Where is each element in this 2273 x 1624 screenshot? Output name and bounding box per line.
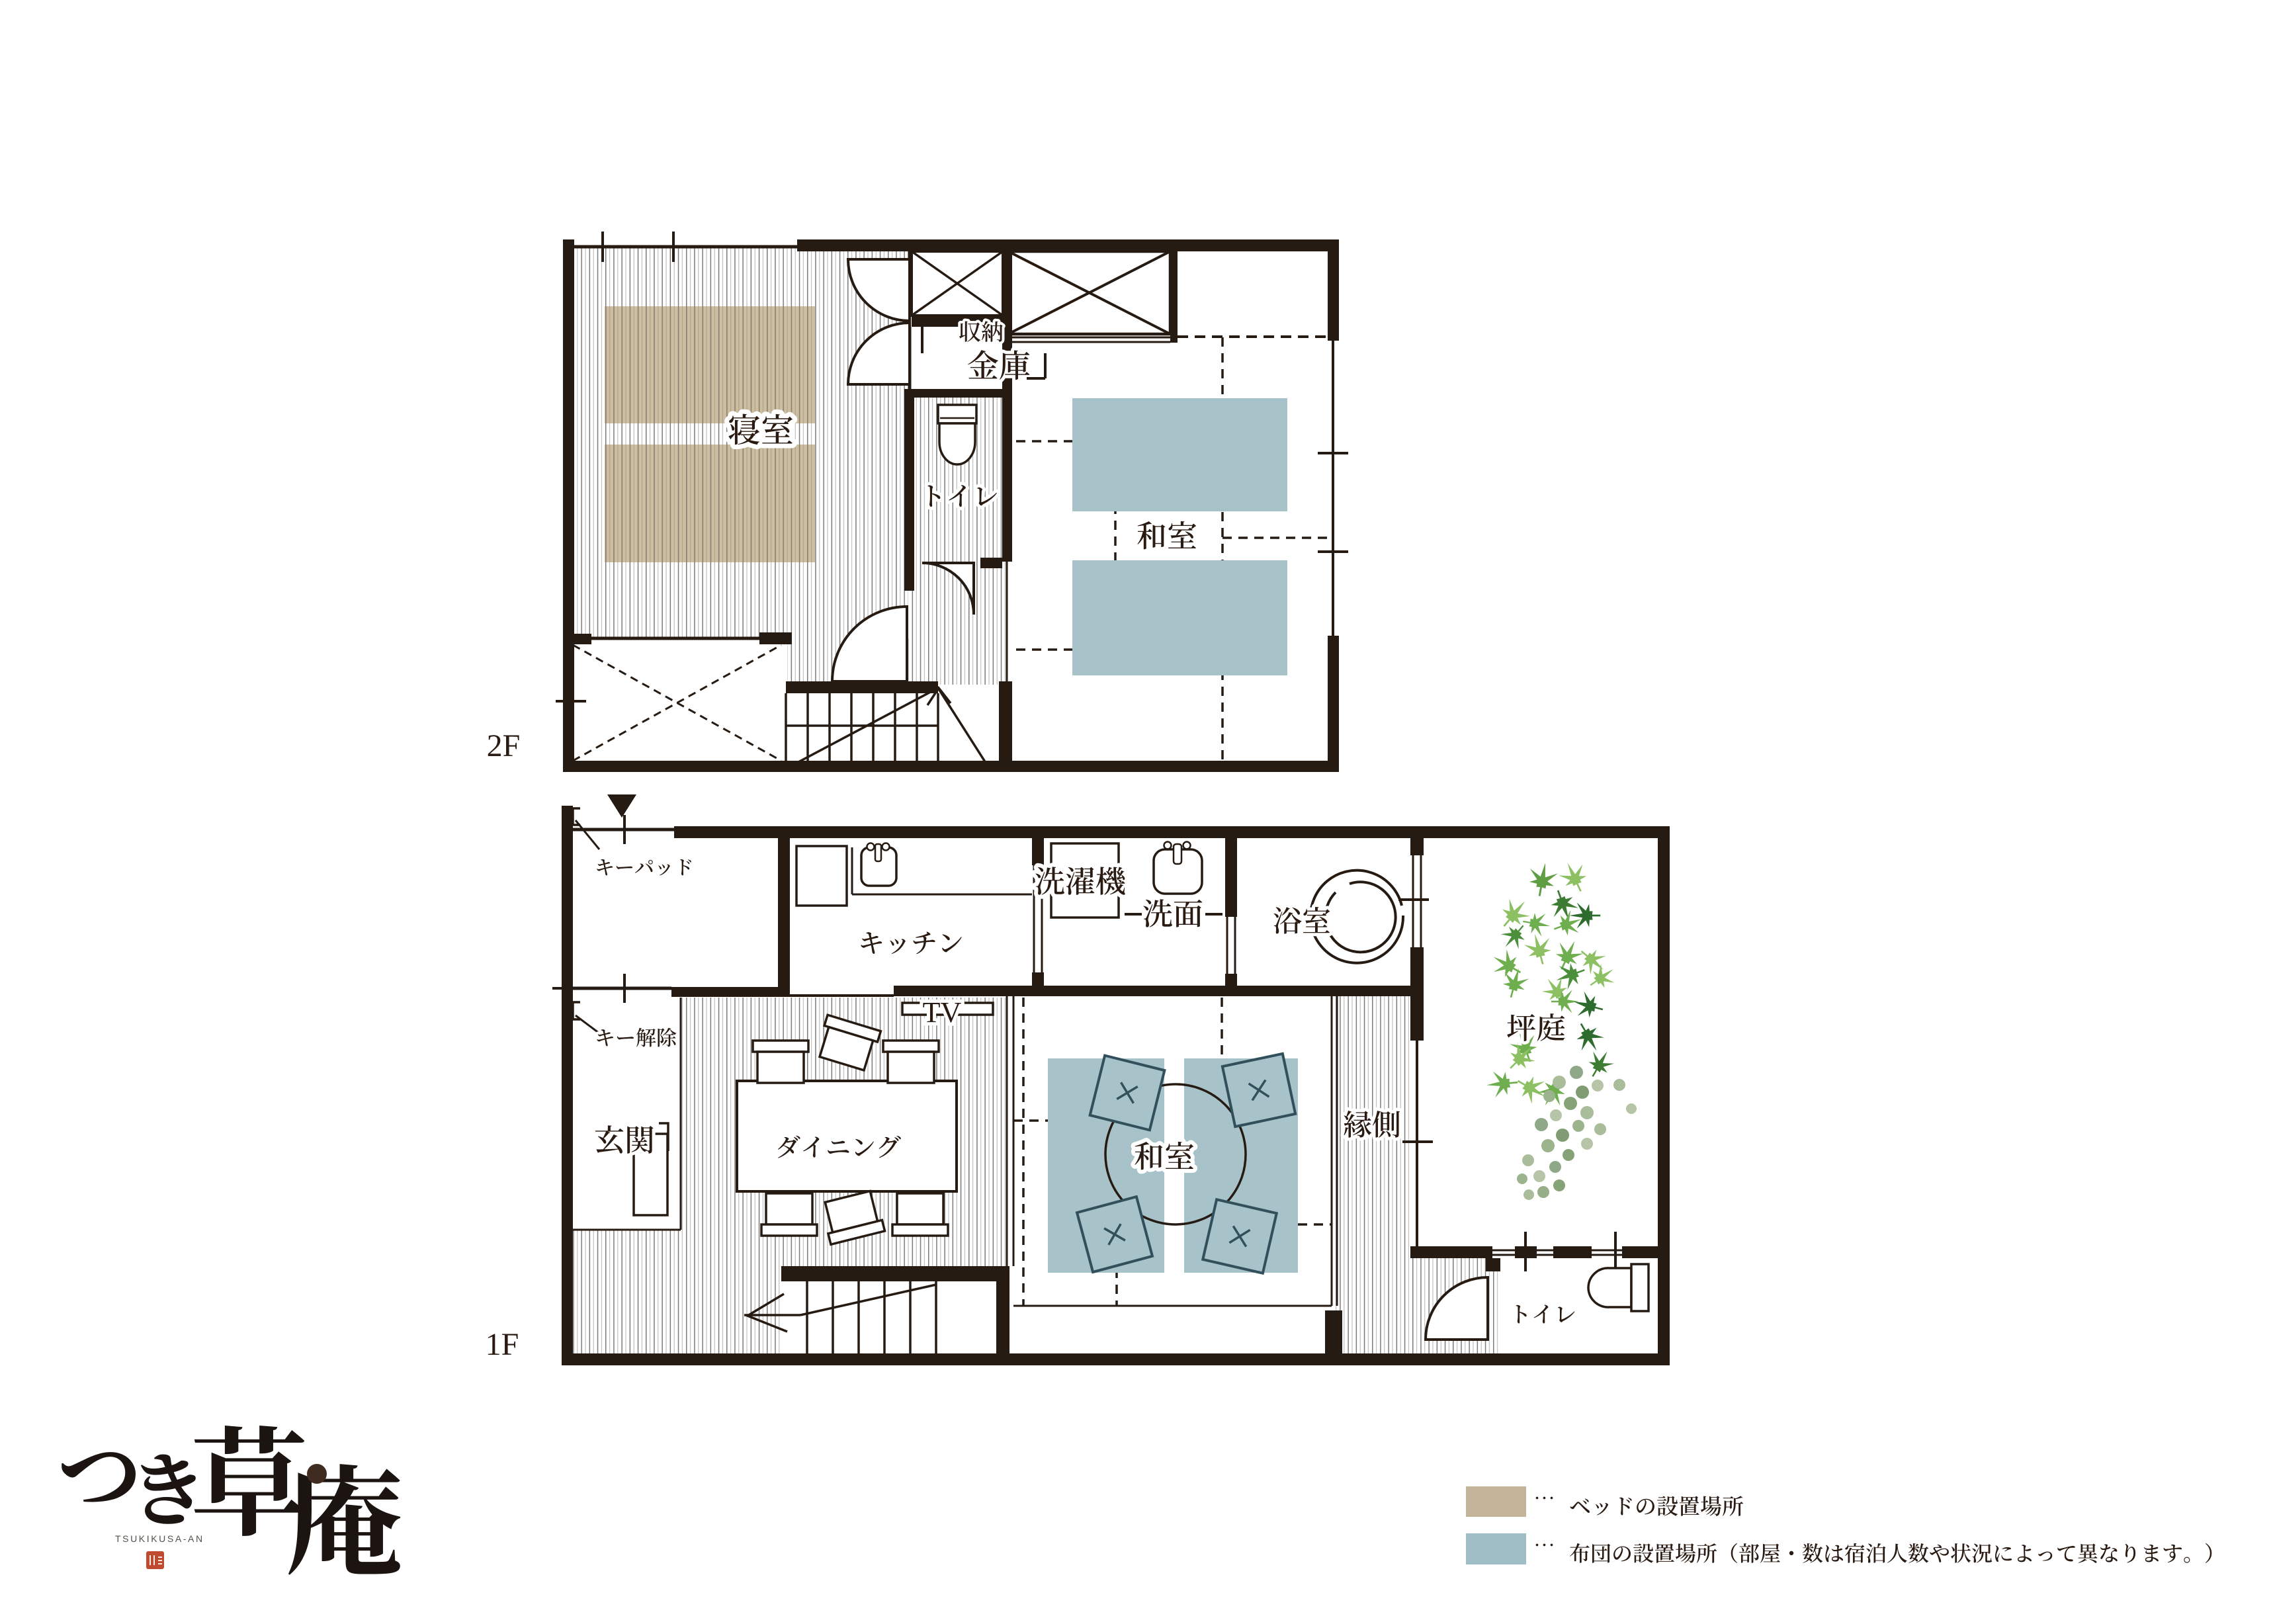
svg-text:2F: 2F	[487, 728, 521, 763]
svg-text:1F: 1F	[486, 1327, 519, 1362]
svg-text:TSUKIKUSA-AN: TSUKIKUSA-AN	[115, 1533, 204, 1544]
svg-text:TV: TV	[923, 996, 962, 1029]
